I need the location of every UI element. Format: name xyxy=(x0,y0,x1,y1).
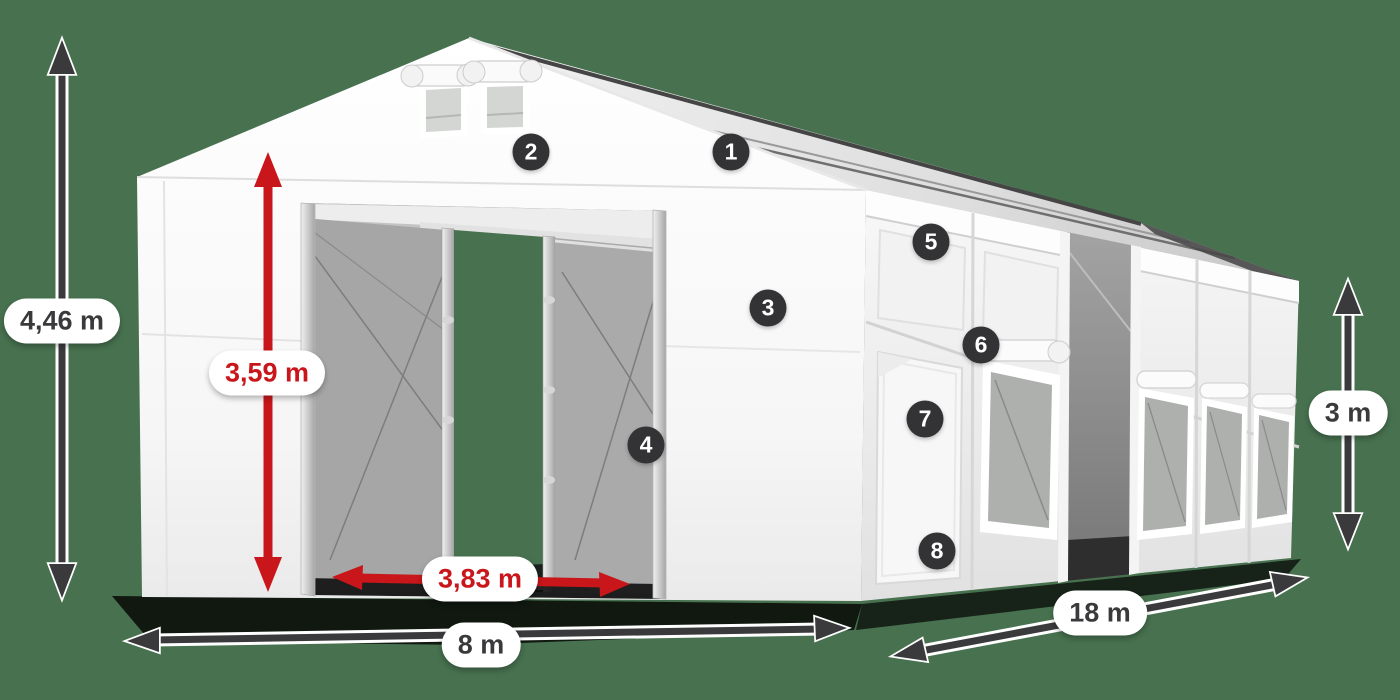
length-label: 18 m xyxy=(1053,591,1147,636)
total-height-label: 4,46 m xyxy=(4,299,120,344)
side-middle-entrance xyxy=(1058,231,1141,583)
feature-badge-3: 3 xyxy=(750,290,787,327)
feature-badge-2: 2 xyxy=(513,134,550,171)
feature-badge-4: 4 xyxy=(628,427,665,464)
front-width-label: 8 m xyxy=(442,623,521,668)
door-height-label: 3,59 m xyxy=(209,351,325,396)
feature-badge-5: 5 xyxy=(913,224,950,261)
tent-illustration xyxy=(0,0,1400,700)
feature-badge-6: 6 xyxy=(963,327,1000,364)
feature-badge-1: 1 xyxy=(713,134,750,171)
feature-badge-7: 7 xyxy=(907,401,944,438)
door-width-label: 3,83 m xyxy=(422,557,538,602)
front-door-interior xyxy=(304,203,660,600)
feature-badge-8: 8 xyxy=(919,533,956,570)
tent-dimension-diagram: 4,46 m 3,59 m 3,83 m 8 m 18 m 3 m 1 2 3 … xyxy=(0,0,1400,700)
side-height-label: 3 m xyxy=(1309,391,1388,436)
